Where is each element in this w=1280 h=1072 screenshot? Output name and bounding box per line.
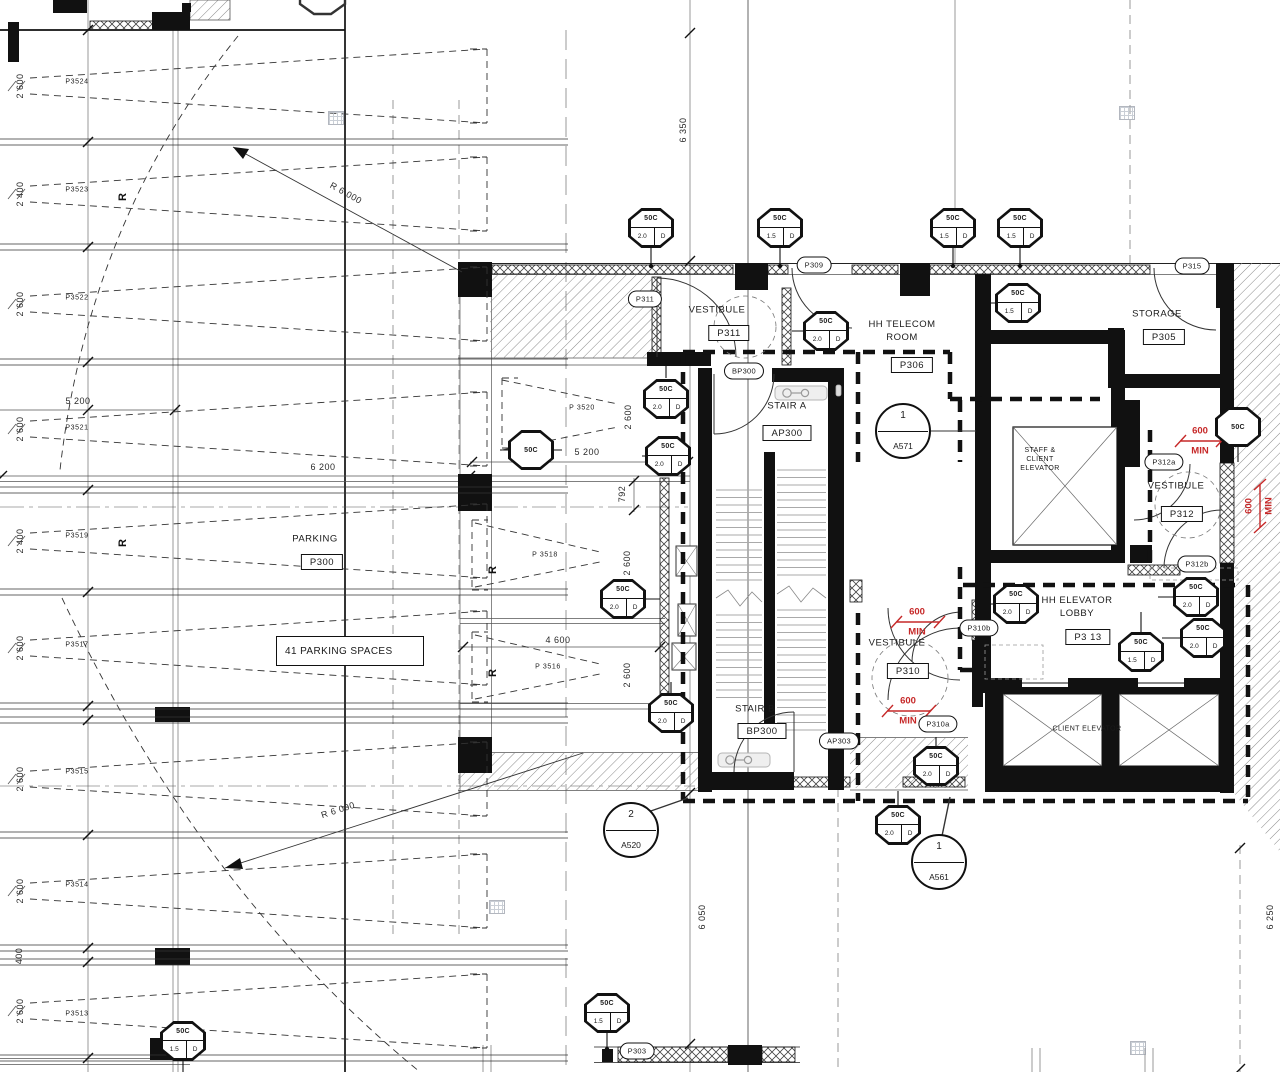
dimension-label: R 6 000 — [320, 800, 356, 820]
tag-size: 2.0 — [646, 399, 670, 417]
room-name-line: STAIR B — [735, 704, 775, 717]
door-rating-tag: 50C1.5D — [1118, 632, 1164, 672]
clearance-value: 600 — [1191, 427, 1208, 437]
grid-symbol-icon — [1119, 106, 1135, 120]
annotation-layer: 41 PARKING SPACES P35242 600P35232 400P3… — [0, 0, 1280, 1072]
door-number-tag: P303 — [620, 1043, 655, 1060]
door-number-tag: P310b — [959, 620, 998, 637]
parking-stall-label: P 3516 — [535, 664, 561, 671]
room-name: VESTIBULE — [1148, 481, 1205, 494]
dimension-label: 6 350 — [678, 117, 688, 142]
parking-stall-label: P3521 — [65, 425, 88, 432]
tag-size: 2.0 — [916, 766, 940, 784]
room-name-line: ROOM — [868, 332, 935, 345]
stall-dimension: 2 400 — [15, 181, 25, 206]
tag-size: 1.5 — [1121, 652, 1145, 670]
dimension-label: 400 — [14, 948, 24, 965]
octagon-inner: 50C1.5D — [587, 996, 628, 1031]
detail-marker: 1A571 — [875, 403, 931, 459]
tag-size: 2.0 — [878, 825, 902, 843]
dimension-label: 6 050 — [697, 904, 707, 929]
clearance-note: 600MIN — [1191, 427, 1208, 456]
octagon-inner: 50C — [511, 433, 552, 468]
room-name: HH ELEVATORLOBBY — [1042, 595, 1113, 621]
octagon-inner: 50C2.0D — [603, 582, 644, 617]
detail-number: 2 — [605, 809, 657, 820]
tag-size: 1.5 — [163, 1041, 187, 1059]
dimension-label: 6 250 — [1265, 904, 1275, 929]
door-rating-tag: 50C2.0D — [600, 579, 646, 619]
tag-rating: 50C — [511, 433, 552, 468]
room-number-tag: P3 13 — [1065, 629, 1110, 645]
stall-dimension: 2 600 — [623, 404, 633, 429]
room-name-line: CLIENT ELEVATOR — [1053, 726, 1122, 735]
room-name: CLIENT ELEVATOR — [1053, 726, 1122, 735]
dimension-label: R 6 000 — [328, 180, 363, 206]
door-rating-tag: 50C2.0D — [803, 311, 849, 351]
door-number-tag: BP300 — [724, 363, 764, 380]
door-rating-tag: 50C2.0D — [645, 436, 691, 476]
room-name-line: VESTIBULE — [869, 638, 926, 651]
clearance-value: 600 — [899, 697, 916, 707]
parking-stall-label: P 3518 — [532, 552, 558, 559]
door-number-tag: P311 — [628, 291, 662, 308]
room-name: VESTIBULE — [869, 638, 926, 651]
detail-marker: 2A520 — [603, 802, 659, 858]
octagon-inner: 50C2.0D — [1183, 621, 1224, 656]
stall-dimension: 2 600 — [15, 73, 25, 98]
door-rating-tag: 50C2.0D — [875, 805, 921, 845]
door-rating-tag: 50C — [508, 430, 554, 470]
room-name: STAFF &CLIENTELEVATOR — [1020, 447, 1059, 473]
reserved-stall-marker: R — [117, 193, 129, 201]
stall-dimension: 2 600 — [622, 662, 632, 687]
octagon-inner: 50C1.5D — [1000, 211, 1041, 246]
room-name: STORAGE — [1132, 309, 1182, 322]
room-name-line: PARKING — [292, 534, 338, 547]
clearance-value: 600 — [908, 608, 925, 618]
door-rating-tag: 50C2.0D — [628, 208, 674, 248]
room-name: VESTIBULE — [689, 305, 746, 318]
room-name-line: STAFF & — [1020, 447, 1059, 456]
room-name: STAIR B — [735, 704, 775, 717]
door-rating-tag: 50C1.5D — [995, 283, 1041, 323]
octagon-inner: 50C2.0D — [916, 749, 957, 784]
octagon-inner: 50C1.5D — [163, 1024, 204, 1059]
door-number-tag: AP303 — [819, 733, 859, 750]
octagon-inner: 50C1.5D — [998, 286, 1039, 321]
octagon-inner: 50C2.0D — [1176, 580, 1217, 615]
tag-size: 1.5 — [933, 228, 957, 246]
parking-stall-label: P 3520 — [569, 405, 595, 412]
octagon-inner: 50C2.0D — [996, 587, 1037, 622]
room-number-tag: P305 — [1143, 329, 1185, 345]
door-rating-tag: 50C1.5D — [757, 208, 803, 248]
door-rating-tag: 50C1.5D — [997, 208, 1043, 248]
parking-stall-label: P3519 — [65, 533, 88, 540]
clearance-note: 600MIN — [899, 697, 916, 726]
tag-size: 2.0 — [631, 228, 655, 246]
detail-sheet: A561 — [913, 872, 965, 882]
clearance-value: 600 — [1245, 497, 1255, 514]
reserved-stall-marker: R — [487, 669, 499, 677]
door-rating-tag: 50C2.0D — [913, 746, 959, 786]
dimension-label: 5 200 — [65, 396, 90, 406]
room-number-tag: P306 — [891, 357, 933, 373]
tag-size: 1.5 — [587, 1013, 611, 1031]
door-rating-tag: 50C2.0D — [1180, 618, 1226, 658]
clearance-unit: MIN — [908, 627, 925, 637]
parking-stall-label: P3522 — [65, 295, 88, 302]
parking-count-text: 41 PARKING SPACES — [285, 646, 393, 657]
room-name: PARKING — [292, 534, 338, 547]
parking-stall-label: P3523 — [65, 187, 88, 194]
stall-dimension: 2 600 — [15, 291, 25, 316]
tag-size: 2.0 — [603, 599, 627, 617]
detail-number: 1 — [913, 841, 965, 852]
detail-sheet: A520 — [605, 840, 657, 850]
octagon-inner: 50C2.0D — [806, 314, 847, 349]
tag-size: 1.5 — [1000, 228, 1024, 246]
door-rating-tag: 50C — [1215, 407, 1261, 447]
tag-size: 1.5 — [998, 303, 1022, 321]
octagon-inner: 50C2.0D — [646, 382, 687, 417]
tag-size: 2.0 — [648, 456, 672, 474]
octagon-inner: 50C — [1218, 410, 1259, 445]
tag-size: 2.0 — [996, 604, 1020, 622]
room-name-line: HH TELECOM — [868, 319, 935, 332]
door-rating-tag: 50C1.5D — [584, 993, 630, 1033]
clearance-unit: MIN — [899, 716, 916, 726]
parking-stall-label: P3514 — [65, 882, 88, 889]
door-number-tag: P309 — [797, 257, 832, 274]
door-rating-tag: 50C1.5D — [160, 1021, 206, 1061]
room-number-tag: BP300 — [737, 723, 786, 739]
room-number-tag: P311 — [708, 325, 749, 341]
tag-size: 2.0 — [651, 713, 675, 731]
door-rating-tag: 50C2.0D — [993, 584, 1039, 624]
parking-stall-label: P3517 — [65, 642, 88, 649]
octagon-inner: 50C1.5D — [933, 211, 974, 246]
clearance-unit: MIN — [1191, 446, 1208, 456]
stall-dimension: 2 600 — [622, 550, 632, 575]
dimension-label: 4 600 — [545, 635, 570, 645]
tag-size: 2.0 — [806, 331, 830, 349]
detail-marker: 1A561 — [911, 834, 967, 890]
door-number-tag: P312b — [1177, 556, 1216, 573]
dimension-label: 6 200 — [310, 462, 335, 472]
room-name-line: HH ELEVATOR — [1042, 595, 1113, 608]
parking-stall-label: P3515 — [65, 769, 88, 776]
door-number-tag: P310a — [918, 716, 957, 733]
door-rating-tag: 50C1.5D — [930, 208, 976, 248]
stall-dimension: 2 600 — [15, 416, 25, 441]
detail-sheet: A571 — [877, 441, 929, 451]
stall-dimension: 2 600 — [15, 998, 25, 1023]
grid-symbol-icon — [328, 111, 344, 125]
door-rating-tag: 50C2.0D — [648, 693, 694, 733]
tag-size: 1.5 — [760, 228, 784, 246]
stall-dimension: 2 600 — [15, 766, 25, 791]
dimension-label: 5 200 — [574, 447, 599, 457]
tag-rating: 50C — [1218, 410, 1259, 445]
room-name-line: STAIR A — [767, 401, 806, 414]
room-name-line: STORAGE — [1132, 309, 1182, 322]
grid-symbol-icon — [1130, 1041, 1146, 1055]
room-number-tag: AP300 — [762, 425, 811, 441]
room-name-line: VESTIBULE — [689, 305, 746, 318]
stall-dimension: 2 400 — [15, 528, 25, 553]
room-number-tag: P312 — [1161, 506, 1203, 522]
octagon-inner: 50C1.5D — [760, 211, 801, 246]
room-number-tag: P300 — [301, 554, 343, 570]
door-rating-tag: 50C2.0D — [1173, 577, 1219, 617]
dimension-label: 792 — [617, 486, 627, 503]
room-name-line: ELEVATOR — [1020, 464, 1059, 473]
tag-size: 2.0 — [1183, 638, 1207, 656]
octagon-inner: 50C2.0D — [651, 696, 692, 731]
clearance-note: 600MIN — [908, 608, 925, 637]
parking-stall-label: P3513 — [65, 1011, 88, 1018]
reserved-stall-marker: R — [487, 566, 499, 574]
room-name: STAIR A — [767, 401, 806, 414]
detail-number: 1 — [877, 410, 929, 421]
octagon-inner: 50C2.0D — [648, 439, 689, 474]
tag-size: 2.0 — [1176, 597, 1200, 615]
floor-plan: 41 PARKING SPACES P35242 600P35232 400P3… — [0, 0, 1280, 1072]
reserved-stall-marker: R — [117, 539, 129, 547]
octagon-inner: 50C2.0D — [878, 808, 919, 843]
parking-count-note: 41 PARKING SPACES — [276, 636, 424, 666]
door-rating-tag: 50C2.0D — [643, 379, 689, 419]
room-name-line: CLIENT — [1020, 456, 1059, 465]
clearance-unit: MIN — [1264, 497, 1274, 514]
stall-dimension: 2 600 — [15, 635, 25, 660]
stall-dimension: 2 600 — [15, 878, 25, 903]
grid-symbol-icon — [489, 900, 505, 914]
octagon-inner: 50C1.5D — [1121, 635, 1162, 670]
clearance-note: 600MIN — [1245, 497, 1274, 514]
parking-stall-label: P3524 — [65, 79, 88, 86]
door-number-tag: P312a — [1144, 454, 1183, 471]
room-name-line: LOBBY — [1042, 608, 1113, 621]
room-name: HH TELECOMROOM — [868, 319, 935, 345]
room-number-tag: P310 — [887, 663, 929, 679]
room-name-line: VESTIBULE — [1148, 481, 1205, 494]
door-number-tag: P315 — [1175, 258, 1210, 275]
octagon-inner: 50C2.0D — [631, 211, 672, 246]
